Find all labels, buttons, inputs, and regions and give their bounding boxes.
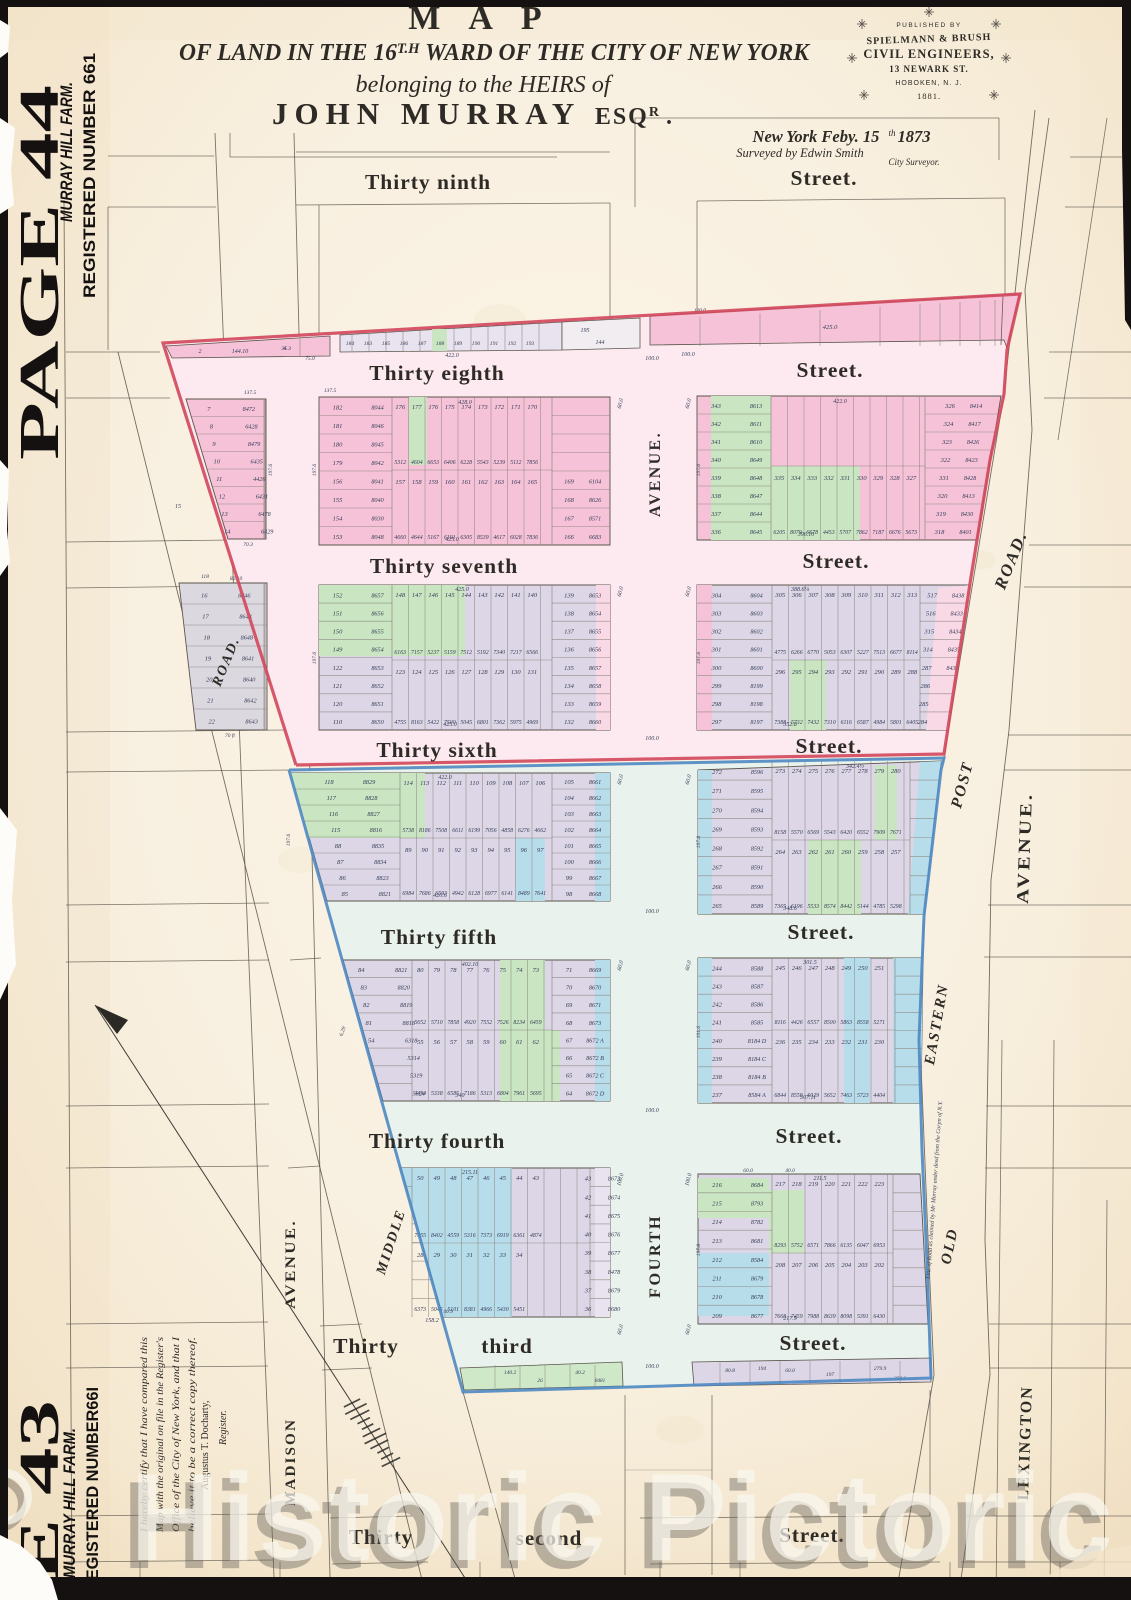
svg-text:140.2: 140.2 [504, 1369, 517, 1376]
svg-text:71: 71 [566, 967, 573, 974]
svg-text:425.0: 425.0 [455, 586, 469, 593]
svg-text:239: 239 [712, 1056, 723, 1063]
svg-text:19: 19 [205, 655, 212, 662]
svg-text:8571: 8571 [589, 516, 601, 523]
svg-text:5430: 5430 [497, 1306, 509, 1313]
svg-text:HOBOKEN, N. J.: HOBOKEN, N. J. [895, 80, 962, 87]
svg-text:422.0: 422.0 [833, 398, 847, 405]
svg-text:343: 343 [710, 403, 722, 410]
svg-text:8793: 8793 [751, 1201, 763, 1208]
svg-text:91: 91 [438, 847, 445, 854]
svg-text:8680: 8680 [608, 1306, 621, 1313]
svg-text:8046: 8046 [371, 423, 384, 430]
svg-text:307.11: 307.11 [799, 1095, 816, 1101]
svg-text:122: 122 [333, 665, 344, 672]
svg-text:Surveyed by Edwin Smith: Surveyed by Edwin Smith [736, 146, 863, 160]
svg-text:86: 86 [339, 875, 346, 882]
svg-text:274: 274 [792, 768, 803, 775]
svg-text:127: 127 [461, 669, 472, 676]
svg-text:12: 12 [219, 493, 226, 500]
svg-text:Street.: Street. [791, 166, 858, 190]
svg-text:6430: 6430 [873, 1313, 885, 1320]
svg-text:61: 61 [516, 1039, 523, 1046]
svg-text:8653: 8653 [371, 665, 383, 672]
svg-text:207: 207 [792, 1262, 803, 1269]
svg-text:299: 299 [712, 683, 723, 690]
svg-text:5314: 5314 [408, 1055, 420, 1062]
svg-text:7508: 7508 [435, 828, 447, 834]
svg-text:8584: 8584 [751, 1257, 763, 1264]
svg-text:333: 333 [806, 475, 818, 482]
svg-text:352.8: 352.8 [782, 722, 797, 728]
svg-text:8679: 8679 [608, 1287, 620, 1294]
svg-text:219: 219 [808, 1181, 819, 1188]
svg-text:5533: 5533 [807, 904, 819, 910]
svg-text:114: 114 [404, 780, 414, 787]
svg-text:305: 305 [774, 592, 786, 599]
svg-text:6428: 6428 [245, 423, 258, 430]
svg-text:8663: 8663 [589, 811, 601, 818]
svg-text:182: 182 [333, 405, 344, 412]
svg-text:8651: 8651 [371, 701, 383, 708]
svg-text:59: 59 [483, 1039, 490, 1046]
svg-text:8667: 8667 [589, 875, 602, 882]
svg-text:101.6: 101.6 [696, 1026, 702, 1039]
svg-text:304: 304 [711, 592, 723, 599]
svg-text:AVENUE.: AVENUE. [647, 431, 664, 517]
svg-text:8642: 8642 [244, 697, 256, 704]
svg-text:173: 173 [478, 404, 489, 411]
svg-text:6653: 6653 [427, 460, 439, 466]
svg-text:40.9: 40.9 [443, 1308, 453, 1315]
svg-text:5801: 5801 [890, 720, 902, 726]
svg-text:14: 14 [224, 528, 231, 535]
svg-text:176: 176 [395, 404, 406, 411]
svg-text:8158: 8158 [774, 830, 786, 836]
svg-text:4755: 4755 [394, 719, 406, 726]
svg-text:139: 139 [564, 592, 575, 599]
svg-text:62: 62 [533, 1039, 540, 1046]
svg-text:420.6: 420.6 [433, 892, 447, 899]
svg-text:295: 295 [792, 669, 803, 676]
svg-text:428.0: 428.0 [458, 399, 472, 406]
svg-text:192: 192 [508, 341, 517, 347]
svg-text:217: 217 [775, 1181, 786, 1188]
svg-text:150: 150 [333, 629, 344, 636]
svg-text:8500: 8500 [824, 1020, 836, 1026]
svg-text:8163: 8163 [411, 720, 423, 726]
svg-text:47: 47 [467, 1175, 474, 1182]
svg-text:4404: 4404 [873, 1092, 885, 1099]
svg-text:30: 30 [449, 1252, 457, 1259]
svg-text:172: 172 [494, 404, 505, 411]
svg-text:216: 216 [712, 1182, 723, 1189]
svg-text:298: 298 [712, 701, 723, 708]
svg-text:324: 324 [943, 421, 955, 428]
svg-text:8668: 8668 [589, 891, 602, 898]
svg-text:262: 262 [808, 849, 819, 856]
svg-text:6135: 6135 [840, 1243, 852, 1249]
svg-text:264: 264 [775, 849, 786, 856]
svg-text:7362: 7362 [493, 720, 505, 726]
svg-text:45: 45 [500, 1175, 507, 1182]
svg-text:8657: 8657 [589, 665, 602, 672]
svg-text:33: 33 [499, 1252, 507, 1259]
svg-text:272: 272 [712, 769, 723, 776]
svg-text:193: 193 [526, 341, 535, 347]
svg-text:8821: 8821 [395, 967, 407, 974]
svg-text:1873: 1873 [898, 127, 931, 146]
svg-text:171: 171 [511, 404, 521, 411]
svg-text:232: 232 [841, 1039, 852, 1046]
svg-text:197: 197 [826, 1372, 835, 1378]
svg-text:80: 80 [417, 967, 424, 974]
svg-text:8656: 8656 [589, 647, 602, 654]
svg-text:8666: 8666 [589, 859, 602, 866]
svg-text:133: 133 [564, 701, 575, 708]
svg-text:5863: 5863 [840, 1020, 852, 1026]
svg-text:215.11: 215.11 [462, 1170, 478, 1176]
svg-text:8044: 8044 [371, 405, 383, 412]
svg-text:214: 214 [712, 1219, 723, 1226]
svg-text:294: 294 [808, 669, 819, 676]
svg-text:7909: 7909 [873, 830, 885, 836]
svg-text:32: 32 [482, 1252, 490, 1259]
svg-text:8045: 8045 [371, 442, 383, 449]
svg-text:8643: 8643 [245, 718, 257, 725]
svg-text:5159: 5159 [444, 650, 456, 656]
svg-text:80.8: 80.8 [725, 1368, 735, 1374]
svg-text:331: 331 [839, 475, 850, 482]
svg-text:6953: 6953 [873, 1243, 885, 1249]
svg-text:197.6: 197.6 [286, 834, 292, 847]
svg-text:8676: 8676 [608, 1232, 621, 1239]
svg-text:8659: 8659 [589, 701, 601, 708]
svg-text:43: 43 [585, 1176, 592, 1183]
svg-text:6028: 6028 [510, 535, 522, 541]
svg-text:181: 181 [333, 423, 343, 430]
svg-text:8649: 8649 [750, 457, 762, 464]
svg-text:65: 65 [566, 1073, 573, 1080]
svg-text:309: 309 [840, 592, 852, 599]
svg-text:67: 67 [566, 1038, 573, 1045]
svg-text:OF LAND IN THE 16T.H WARD OF T: OF LAND IN THE 16T.H WARD OF THE CITY OF… [179, 40, 811, 66]
svg-text:6163: 6163 [394, 650, 406, 656]
svg-text:6373: 6373 [414, 1307, 426, 1313]
svg-text:82: 82 [363, 1002, 370, 1009]
svg-text:8479: 8479 [248, 441, 260, 448]
svg-text:190: 190 [472, 341, 481, 347]
svg-text:261: 261 [825, 849, 835, 856]
svg-text:7641: 7641 [534, 890, 546, 897]
svg-text:Street.: Street. [797, 358, 864, 382]
svg-text:273: 273 [775, 768, 786, 775]
svg-text:13 NEWARK ST.: 13 NEWARK ST. [889, 64, 969, 74]
svg-text:202: 202 [874, 1262, 885, 1269]
svg-text:77: 77 [467, 967, 474, 974]
svg-text:388.6¼: 388.6¼ [790, 587, 810, 593]
svg-text:158.2: 158.2 [425, 1318, 439, 1324]
svg-text:144.10: 144.10 [232, 348, 249, 355]
svg-text:4494: 4494 [414, 1090, 426, 1097]
svg-text:8601: 8601 [750, 647, 762, 654]
svg-text:8592: 8592 [751, 846, 763, 853]
svg-text:108: 108 [502, 780, 513, 787]
svg-text:6141: 6141 [501, 890, 513, 897]
svg-text:6199: 6199 [468, 828, 480, 834]
svg-text:60.0: 60.0 [743, 1168, 753, 1174]
svg-text:8673: 8673 [589, 1020, 601, 1027]
svg-text:88: 88 [335, 843, 342, 850]
svg-text:2: 2 [199, 349, 202, 355]
svg-text:132: 132 [564, 719, 575, 726]
svg-text:106: 106 [535, 780, 546, 787]
svg-text:8782: 8782 [751, 1219, 763, 1226]
svg-text:8675: 8675 [608, 1213, 620, 1220]
svg-text:179: 179 [333, 460, 344, 467]
svg-text:5652: 5652 [824, 1093, 836, 1099]
svg-text:8602: 8602 [750, 629, 762, 636]
svg-text:152: 152 [333, 592, 344, 599]
svg-text:266: 266 [712, 884, 723, 891]
svg-text:6128: 6128 [468, 891, 480, 897]
svg-text:158: 158 [412, 479, 423, 486]
svg-text:402.10: 402.10 [462, 961, 479, 968]
svg-text:279.9: 279.9 [874, 1366, 887, 1372]
svg-text:302: 302 [711, 629, 723, 636]
svg-text:8647: 8647 [750, 493, 763, 500]
svg-text:301.5: 301.5 [802, 960, 817, 966]
svg-text:197.6: 197.6 [696, 464, 702, 477]
svg-text:8648: 8648 [750, 475, 763, 482]
svg-text:268: 268 [712, 846, 723, 853]
svg-text:4942: 4942 [452, 890, 464, 897]
svg-text:265: 265 [712, 903, 723, 910]
svg-text:257: 257 [891, 849, 902, 856]
svg-text:81: 81 [365, 1020, 372, 1027]
svg-text:5975: 5975 [510, 720, 522, 726]
svg-text:5227: 5227 [857, 650, 870, 656]
svg-text:310: 310 [857, 592, 869, 599]
svg-text:5543: 5543 [477, 459, 489, 466]
svg-text:Thirty sixth: Thirty sixth [376, 738, 497, 762]
svg-text:145: 145 [445, 592, 456, 599]
svg-text:290: 290 [874, 669, 885, 676]
svg-text:6611: 6611 [452, 828, 463, 834]
svg-text:6984: 6984 [402, 890, 414, 897]
svg-text:276: 276 [825, 768, 836, 775]
svg-text:4984: 4984 [873, 719, 885, 726]
svg-text:134: 134 [564, 683, 575, 690]
svg-text:336: 336 [710, 529, 722, 536]
svg-text:5422: 5422 [427, 719, 439, 726]
svg-text:8417: 8417 [968, 421, 981, 428]
svg-text:7340: 7340 [493, 649, 505, 656]
svg-text:118: 118 [324, 779, 334, 786]
svg-text:260: 260 [841, 849, 852, 856]
svg-text:5738: 5738 [402, 828, 414, 834]
svg-text:7186: 7186 [464, 1091, 476, 1097]
svg-text:289: 289 [891, 669, 902, 676]
svg-text:8048: 8048 [371, 534, 384, 541]
svg-text:197.6: 197.6 [696, 652, 702, 665]
svg-text:210: 210 [712, 1294, 723, 1301]
svg-text:6587: 6587 [857, 720, 870, 726]
svg-text:8672 C: 8672 C [586, 1073, 605, 1080]
svg-text:Street.: Street. [796, 734, 863, 758]
svg-text:7961: 7961 [513, 1091, 525, 1097]
svg-text:6557: 6557 [807, 1020, 820, 1026]
svg-text:307: 307 [807, 592, 819, 599]
svg-text:46: 46 [483, 1175, 490, 1182]
svg-text:337: 337 [710, 511, 722, 518]
svg-text:245: 245 [775, 965, 786, 972]
svg-text:187: 187 [418, 341, 427, 347]
svg-text:4426: 4426 [253, 476, 266, 483]
svg-text:6569: 6569 [807, 830, 819, 836]
svg-text:Register.: Register. [218, 1410, 229, 1446]
svg-text:8684: 8684 [751, 1182, 763, 1189]
svg-text:8585: 8585 [751, 1020, 763, 1027]
svg-text:233: 233 [825, 1039, 836, 1046]
svg-text:31: 31 [466, 1252, 474, 1259]
svg-text:8596: 8596 [751, 769, 764, 776]
svg-text:222: 222 [858, 1181, 869, 1188]
svg-text:101: 101 [564, 843, 574, 850]
svg-text:60.0: 60.0 [785, 1368, 795, 1374]
svg-text:76: 76 [483, 967, 490, 974]
svg-text:270: 270 [712, 807, 723, 814]
svg-text:313: 313 [906, 592, 918, 599]
svg-text:34: 34 [515, 1252, 523, 1259]
svg-text:6676: 6676 [889, 530, 901, 536]
svg-text:8674: 8674 [608, 1194, 620, 1201]
svg-text:8423: 8423 [965, 457, 977, 464]
svg-text:334: 334 [790, 475, 802, 482]
svg-text:293: 293 [825, 669, 836, 676]
svg-text:111: 111 [453, 780, 462, 787]
svg-text:83: 83 [360, 985, 367, 992]
svg-text:8821: 8821 [379, 891, 391, 898]
svg-text:6406: 6406 [444, 459, 456, 466]
svg-text:41: 41 [585, 1213, 592, 1220]
svg-text:320: 320 [937, 493, 949, 500]
svg-text:328: 328 [889, 475, 901, 482]
svg-text:5695: 5695 [530, 1091, 542, 1097]
svg-text:66: 66 [566, 1055, 573, 1062]
svg-text:AVENUE.: AVENUE. [283, 1219, 299, 1309]
svg-text:8671: 8671 [589, 1002, 601, 1009]
svg-text:301: 301 [711, 647, 722, 654]
svg-text:8645: 8645 [750, 529, 762, 536]
svg-text:248: 248 [825, 965, 836, 972]
svg-text:8639: 8639 [824, 1314, 836, 1320]
svg-text:Street.: Street. [780, 1331, 847, 1355]
svg-text:REGISTERED NUMBER 661: REGISTERED NUMBER 661 [80, 53, 99, 298]
svg-text:5239: 5239 [493, 460, 505, 466]
svg-text:306: 306 [791, 592, 803, 599]
svg-text:43: 43 [533, 1175, 540, 1182]
svg-text:125: 125 [428, 669, 439, 676]
svg-text:342: 342 [710, 421, 722, 428]
svg-text:154: 154 [333, 516, 344, 523]
svg-text:73: 73 [533, 967, 540, 974]
svg-text:35.3: 35.3 [280, 346, 291, 352]
svg-text:197.8: 197.8 [696, 1244, 702, 1257]
svg-text:60: 60 [500, 1039, 507, 1046]
svg-text:40.2: 40.2 [575, 1369, 585, 1376]
svg-text:8650: 8650 [371, 719, 384, 726]
svg-text:4785: 4785 [873, 903, 885, 910]
svg-text:209: 209 [712, 1313, 723, 1320]
svg-text:130: 130 [511, 669, 522, 676]
svg-text:422.0: 422.0 [445, 352, 459, 359]
svg-text:5313: 5313 [480, 1091, 492, 1097]
svg-text:5045: 5045 [460, 719, 472, 726]
svg-text:123: 123 [395, 669, 406, 676]
svg-text:8656: 8656 [371, 611, 384, 618]
svg-text:8834: 8834 [374, 859, 386, 866]
svg-text:308: 308 [824, 592, 836, 599]
svg-text:331: 331 [938, 475, 949, 482]
svg-text:271: 271 [712, 788, 722, 795]
svg-text:92: 92 [455, 847, 462, 854]
svg-text:26: 26 [537, 1378, 543, 1384]
svg-text:120: 120 [333, 701, 344, 708]
svg-text:143: 143 [478, 592, 489, 599]
svg-text:36: 36 [584, 1306, 592, 1313]
svg-text:267: 267 [712, 865, 723, 872]
svg-text:340: 340 [710, 457, 722, 464]
svg-text:8678: 8678 [751, 1294, 764, 1301]
svg-text:212: 212 [712, 1257, 723, 1264]
svg-text:1881.: 1881. [917, 91, 941, 101]
svg-text:Street.: Street. [788, 920, 855, 944]
svg-text:8098: 8098 [840, 1314, 852, 1320]
svg-text:8041: 8041 [371, 479, 383, 486]
svg-text:6801: 6801 [477, 720, 489, 726]
svg-text:244: 244 [712, 965, 723, 972]
svg-text:8828: 8828 [365, 795, 378, 802]
svg-text:161: 161 [461, 479, 471, 486]
svg-text:116: 116 [329, 811, 339, 818]
svg-text:8426: 8426 [967, 439, 980, 446]
svg-text:129: 129 [494, 669, 505, 676]
svg-text:221: 221 [841, 1181, 851, 1188]
svg-text:70 ft: 70 ft [225, 732, 235, 739]
svg-text:8199: 8199 [750, 683, 762, 690]
svg-text:240: 240 [712, 1038, 723, 1045]
svg-text:4662: 4662 [534, 827, 546, 834]
svg-text:100.0: 100.0 [645, 1108, 659, 1114]
svg-text:8591: 8591 [751, 865, 763, 872]
svg-text:102: 102 [564, 827, 575, 834]
svg-text:5319: 5319 [410, 1073, 422, 1080]
svg-text:311: 311 [874, 592, 884, 599]
svg-text:8653: 8653 [589, 592, 601, 599]
svg-text:79: 79 [434, 967, 441, 974]
svg-text:335: 335 [773, 475, 785, 482]
svg-text:8611: 8611 [750, 421, 762, 428]
svg-text:318: 318 [934, 529, 946, 536]
svg-text:8030: 8030 [371, 516, 384, 523]
svg-text:4775: 4775 [774, 649, 786, 656]
svg-text:78: 78 [450, 967, 457, 974]
svg-text:238: 238 [712, 1074, 723, 1081]
svg-text:340: 340 [455, 1092, 465, 1099]
svg-text:6571: 6571 [807, 1243, 819, 1249]
svg-text:8640: 8640 [243, 676, 256, 683]
